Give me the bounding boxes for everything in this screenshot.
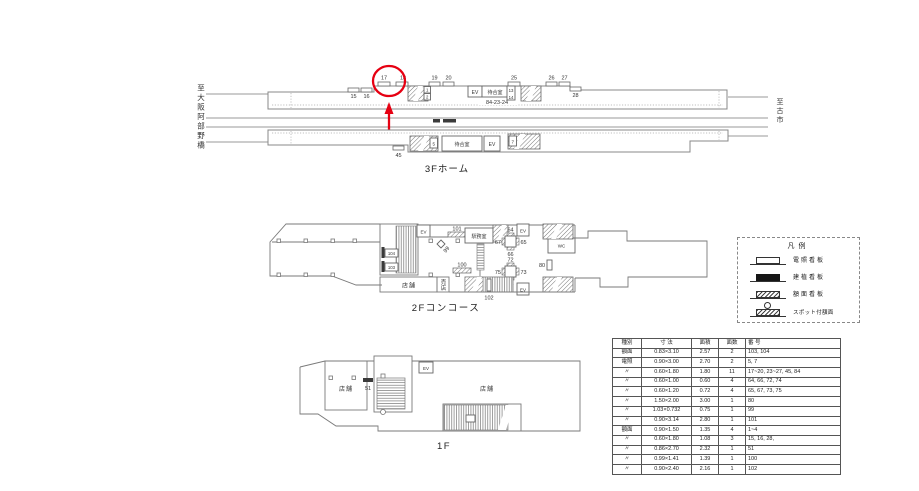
table-row: 〃1.50×2.003.00180 <box>613 397 841 407</box>
sign-27 <box>559 82 570 86</box>
table-row: 〃0.60×1.200.72465, 67, 73, 75 <box>613 387 841 397</box>
table-row: 〃0.60×1.801.08315, 16, 28, <box>613 435 841 445</box>
table-header-cell: 寸 法 <box>642 339 692 349</box>
table-cell: 1 <box>719 445 746 455</box>
table-row: 〃0.90×2.402.161102 <box>613 464 841 474</box>
sign-18 <box>396 82 408 86</box>
stairs-1f-center <box>374 356 412 415</box>
table-header-row: 種別寸 法面積面数番 号 <box>613 339 841 349</box>
ground-sign-symbol <box>750 274 786 282</box>
legend-item-label: スポット付額面 <box>793 308 834 317</box>
stairs-landing-box <box>466 415 475 422</box>
table-cell: 0.60×1.80 <box>642 368 692 378</box>
sign-bar-103 <box>382 261 385 272</box>
table-cell: 0.90×3.14 <box>642 416 692 426</box>
table-cell: 2.57 <box>692 348 719 358</box>
table-cell: 1 <box>719 397 746 407</box>
table-cell: 1 <box>719 406 746 416</box>
table-cell: 11 <box>719 368 746 378</box>
table-cell: 〃 <box>613 455 642 465</box>
table-cell: 3 <box>719 435 746 445</box>
table-cell: 額面 <box>613 348 642 358</box>
table-row: 額面0.90×1.501.3541~4 <box>613 426 841 436</box>
table-cell: 〃 <box>613 406 642 416</box>
table-cell: 64, 66, 72, 74 <box>746 377 841 387</box>
sign-16 <box>361 88 372 92</box>
floor-3f-title: 3Fホーム <box>425 164 469 175</box>
shop-label-1f-left: 店舗 <box>339 385 353 393</box>
table-cell: 2.16 <box>692 464 719 474</box>
sign-label-103: 103 <box>388 265 396 270</box>
sign-102 <box>487 279 491 291</box>
sign-label-27: 27 <box>561 76 567 82</box>
column <box>429 273 433 277</box>
wc-label: WC <box>558 244 566 249</box>
table-cell: 〃 <box>613 445 642 455</box>
spotlight-face-sign-symbol <box>750 309 786 317</box>
floor-1f-map: 店舗 51 EV 店舗 1F <box>300 356 580 452</box>
stairs-treads <box>377 378 405 409</box>
table-cell: 101 <box>746 416 841 426</box>
legend-item-label: 額面看板 <box>793 289 825 299</box>
table-cell: 0.60×1.20 <box>642 387 692 397</box>
sign-15 <box>348 88 359 92</box>
table-cell: 5, 7 <box>746 358 841 368</box>
elevator-label: EV <box>420 230 426 235</box>
pillar-sign-75 <box>502 268 505 275</box>
table-cell: 2.80 <box>692 416 719 426</box>
table-cell: 1.08 <box>692 435 719 445</box>
1f-outline-main <box>300 361 580 431</box>
table-cell: 1 <box>719 455 746 465</box>
sign-label-13: 13 <box>509 88 514 93</box>
table-cell: 80 <box>746 397 841 407</box>
elevator-label: EV <box>489 142 496 148</box>
table-cell: 額面 <box>613 426 642 436</box>
column <box>429 239 433 243</box>
stairs-2f-right-top <box>543 224 573 239</box>
sign-label-75: 75 <box>495 270 501 276</box>
sign-label-67: 67 <box>495 240 501 246</box>
table-cell: 51 <box>746 445 841 455</box>
ground-sign-bar <box>443 119 456 123</box>
table-cell: 0.60×1.80 <box>642 435 692 445</box>
sign-label-15: 15 <box>350 94 356 100</box>
sign-19 <box>429 82 440 86</box>
face-sign-symbol <box>750 291 786 299</box>
column <box>304 239 308 243</box>
legend-item: スポット付額面 <box>750 308 834 317</box>
table-row: 〃0.90×3.142.801101 <box>613 416 841 426</box>
table-cell: 99 <box>746 406 841 416</box>
column <box>331 273 335 277</box>
table-cell: 4 <box>719 426 746 436</box>
table-cell: 〃 <box>613 435 642 445</box>
station-sign-layout-page: 15 16 17 18 1 2 19 20 EV 待合室 84-23-24 25 <box>0 0 919 491</box>
stairs-lower-right: 7 <box>508 134 540 149</box>
column <box>352 376 356 380</box>
table-cell: 1.50×2.00 <box>642 397 692 407</box>
column <box>277 273 281 277</box>
table-cell: 2.32 <box>692 445 719 455</box>
stairs-2f-right-bottom <box>543 277 573 292</box>
column <box>456 273 460 277</box>
sign-label-100: 100 <box>457 263 466 269</box>
sign-label-28: 28 <box>572 93 578 99</box>
table-cell: 0.90×1.50 <box>642 426 692 436</box>
table-cell: 〃 <box>613 416 642 426</box>
shop-room-1f-left <box>325 361 367 410</box>
floor-3f-platform-map: 15 16 17 18 1 2 19 20 EV 待合室 84-23-24 25 <box>206 66 768 175</box>
table-cell: 1~4 <box>746 426 841 436</box>
sign-label-51: 51 <box>365 386 371 392</box>
sign-26 <box>546 82 557 86</box>
table-cell: 0.72 <box>692 387 719 397</box>
waiting-room-label: 待合室 <box>487 89 502 96</box>
table-cell: 1.35 <box>692 426 719 436</box>
table-row: 〃1.03×0.7320.75199 <box>613 406 841 416</box>
table-cell: 2 <box>719 348 746 358</box>
pillar-64-67 <box>505 236 516 247</box>
illuminated-sign-symbol <box>750 257 786 265</box>
sign-label-26: 26 <box>548 76 554 82</box>
legend-title: 凡例 <box>738 241 859 251</box>
stairs-treads <box>396 226 416 273</box>
table-cell: 17~20, 23~27, 45, 84 <box>746 368 841 378</box>
kiosk-label-2f: 売店 <box>439 279 445 291</box>
elevator-label: EV <box>472 90 479 96</box>
table-cell: 1.03×0.732 <box>642 406 692 416</box>
table-cell: 0.60×1.00 <box>642 377 692 387</box>
waiting-room-label: 待合室 <box>454 141 469 148</box>
table-row: 〃0.60×1.801.801117~20, 23~27, 45, 84 <box>613 368 841 378</box>
floor-2f-concourse-map: 104 103 店舗 EV 101 駅務室 99 EV <box>270 224 707 314</box>
table-cell: 100 <box>746 455 841 465</box>
legend-item: 額面看板 <box>750 289 825 299</box>
sign-label-80: 80 <box>539 263 545 269</box>
table-cell: 0.90×2.40 <box>642 464 692 474</box>
sign-45 <box>393 146 404 150</box>
table-cell: 0.75 <box>692 406 719 416</box>
escalator-2f <box>477 244 484 270</box>
table-cell: 1 <box>719 464 746 474</box>
stairs-bottom-post <box>381 410 386 415</box>
stairs-upper-right <box>521 86 541 101</box>
shop-label-2f: 店舗 <box>402 282 416 290</box>
spot-sign-99-diamond <box>437 240 445 248</box>
station-office-label: 駅務室 <box>471 233 486 240</box>
table-cell: 4 <box>719 387 746 397</box>
floor-1f-title: 1F <box>437 441 451 452</box>
stairs-lower-left: 5 <box>410 136 438 151</box>
sign-spec-table: 種別寸 法面積面数番 号額面0.83×3.102.572103, 104電照0.… <box>612 338 841 475</box>
table-row: 〃0.99×1.411.391100 <box>613 455 841 465</box>
sign-bar-104 <box>382 247 385 258</box>
pillar-sign-67 <box>502 238 505 245</box>
sign-20 <box>443 82 454 86</box>
table-row: 額面0.83×3.102.572103, 104 <box>613 348 841 358</box>
table-cell: 〃 <box>613 464 642 474</box>
legend-item: 電照看板 <box>750 255 825 265</box>
sign-label-14: 14 <box>509 95 514 100</box>
legend-item-label: 建植看板 <box>793 272 825 282</box>
destination-label-right: 至古市 <box>776 98 783 125</box>
table-cell: 0.90×3.00 <box>642 358 692 368</box>
sign-column-13-14: 13 14 <box>507 86 515 100</box>
pillar-sign-73 <box>516 268 519 275</box>
sign-label-25: 25 <box>511 76 517 82</box>
table-header-cell: 面積 <box>692 339 719 349</box>
grand-stairs-103-104: 104 103 <box>380 224 418 275</box>
stairs-top-post <box>381 374 385 378</box>
destination-label-left: 至大阪阿部野橋 <box>197 84 205 151</box>
elevator-label: EV <box>520 229 526 234</box>
pillar-72-75 <box>505 266 516 277</box>
sign-label-19: 19 <box>431 76 437 82</box>
table-cell: 0.99×1.41 <box>642 455 692 465</box>
table-cell: 1.80 <box>692 368 719 378</box>
column <box>277 239 281 243</box>
sign-label-72: 72 <box>507 258 513 264</box>
sign-25 <box>508 82 520 86</box>
table-cell: 2.70 <box>692 358 719 368</box>
table-cell: 0.83×3.10 <box>642 348 692 358</box>
table-header-cell: 面数 <box>719 339 746 349</box>
floor-2f-title: 2Fコンコース <box>412 303 481 314</box>
legend-item-label: 電照看板 <box>793 255 825 265</box>
sign-28 <box>570 87 581 91</box>
column <box>331 239 335 243</box>
table-row: 〃0.86×2.702.32151 <box>613 445 841 455</box>
1f-outline-topleft <box>300 361 374 367</box>
table-cell: 〃 <box>613 387 642 397</box>
sign-17 <box>378 82 390 86</box>
elevator-label: EV <box>423 366 429 371</box>
sign-101 <box>448 232 466 237</box>
table-cell: 〃 <box>613 368 642 378</box>
column <box>353 239 357 243</box>
table-cell: 1 <box>719 416 746 426</box>
sign-label-84-23-24: 84-23-24 <box>486 100 508 106</box>
structural-columns <box>277 239 460 277</box>
stairs-1f-right <box>443 404 521 431</box>
legend-box: 凡例 電照看板 建植看板 額面看板 スポット付額面 <box>737 237 860 323</box>
sign-label-64: 64 <box>507 228 513 234</box>
sign-label-20: 20 <box>445 76 451 82</box>
table-cell: 2 <box>719 358 746 368</box>
table-cell: 103, 104 <box>746 348 841 358</box>
stairs-treads <box>444 405 508 430</box>
sign-100 <box>453 268 471 273</box>
table-cell: 102 <box>746 464 841 474</box>
table-cell: 1.39 <box>692 455 719 465</box>
table-cell: 0.60 <box>692 377 719 387</box>
table-cell: 65, 67, 73, 75 <box>746 387 841 397</box>
table-header-cell: 番 号 <box>746 339 841 349</box>
sign-label-65: 65 <box>521 240 527 246</box>
ground-sign-bar <box>433 119 440 123</box>
table-cell: 0.86×2.70 <box>642 445 692 455</box>
concourse-east-extension <box>575 231 707 287</box>
concourse-left-outline <box>270 224 382 285</box>
table-cell: 3.00 <box>692 397 719 407</box>
stairs-upper-left: 1 2 <box>408 86 431 101</box>
table-row: 〃0.60×1.000.60464, 66, 72, 74 <box>613 377 841 387</box>
shop-label-1f-right: 店舗 <box>480 385 494 393</box>
column <box>329 376 333 380</box>
sign-80 <box>547 260 552 270</box>
sign-label-45: 45 <box>395 153 401 159</box>
sign-label-102: 102 <box>484 296 493 302</box>
table-cell: 〃 <box>613 397 642 407</box>
sign-label-104: 104 <box>388 251 396 256</box>
legend-item: 建植看板 <box>750 272 825 282</box>
sign-label-99: 99 <box>443 246 452 255</box>
table-cell: 〃 <box>613 377 642 387</box>
table-header-cell: 種別 <box>613 339 642 349</box>
sign-label-17: 17 <box>381 76 387 82</box>
table-cell: 15, 16, 28, <box>746 435 841 445</box>
sign-label-101: 101 <box>452 227 461 233</box>
column <box>304 273 308 277</box>
table-cell: 電照 <box>613 358 642 368</box>
stairs-2f-bottom-center: 102 <box>465 277 513 302</box>
pillar-sign-65 <box>516 238 519 245</box>
table-row: 電照0.90×3.002.7025, 7 <box>613 358 841 368</box>
table-cell: 4 <box>719 377 746 387</box>
sign-label-73: 73 <box>521 270 527 276</box>
column <box>456 239 460 243</box>
sign-51-bar <box>363 378 373 382</box>
sign-label-16: 16 <box>363 94 369 100</box>
